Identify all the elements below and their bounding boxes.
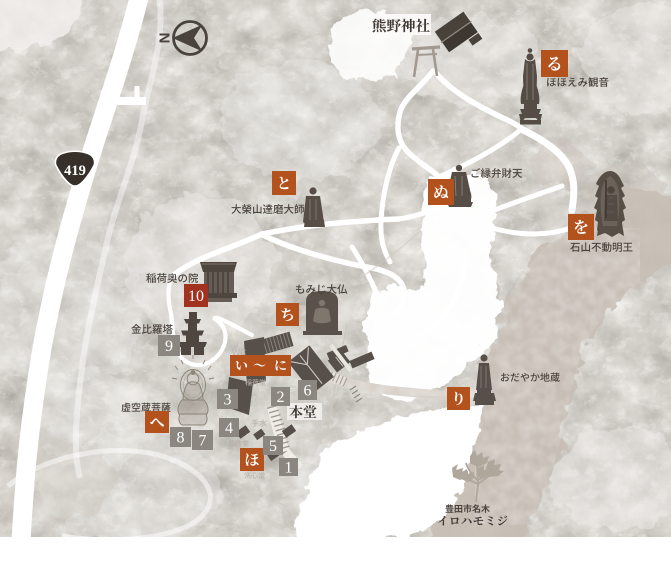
svg-text:419: 419 — [64, 163, 86, 179]
svg-text:5: 5 — [269, 438, 277, 455]
svg-text:1: 1 — [285, 460, 293, 477]
svg-text:7: 7 — [199, 433, 207, 450]
svg-text:6: 6 — [304, 383, 312, 400]
svg-text:8: 8 — [177, 430, 185, 447]
svg-text:2: 2 — [277, 389, 285, 406]
svg-text:4: 4 — [225, 420, 233, 437]
svg-text:9: 9 — [165, 338, 173, 355]
svg-text:N: N — [157, 33, 174, 44]
svg-text:10: 10 — [188, 288, 204, 305]
svg-text:3: 3 — [224, 392, 232, 409]
